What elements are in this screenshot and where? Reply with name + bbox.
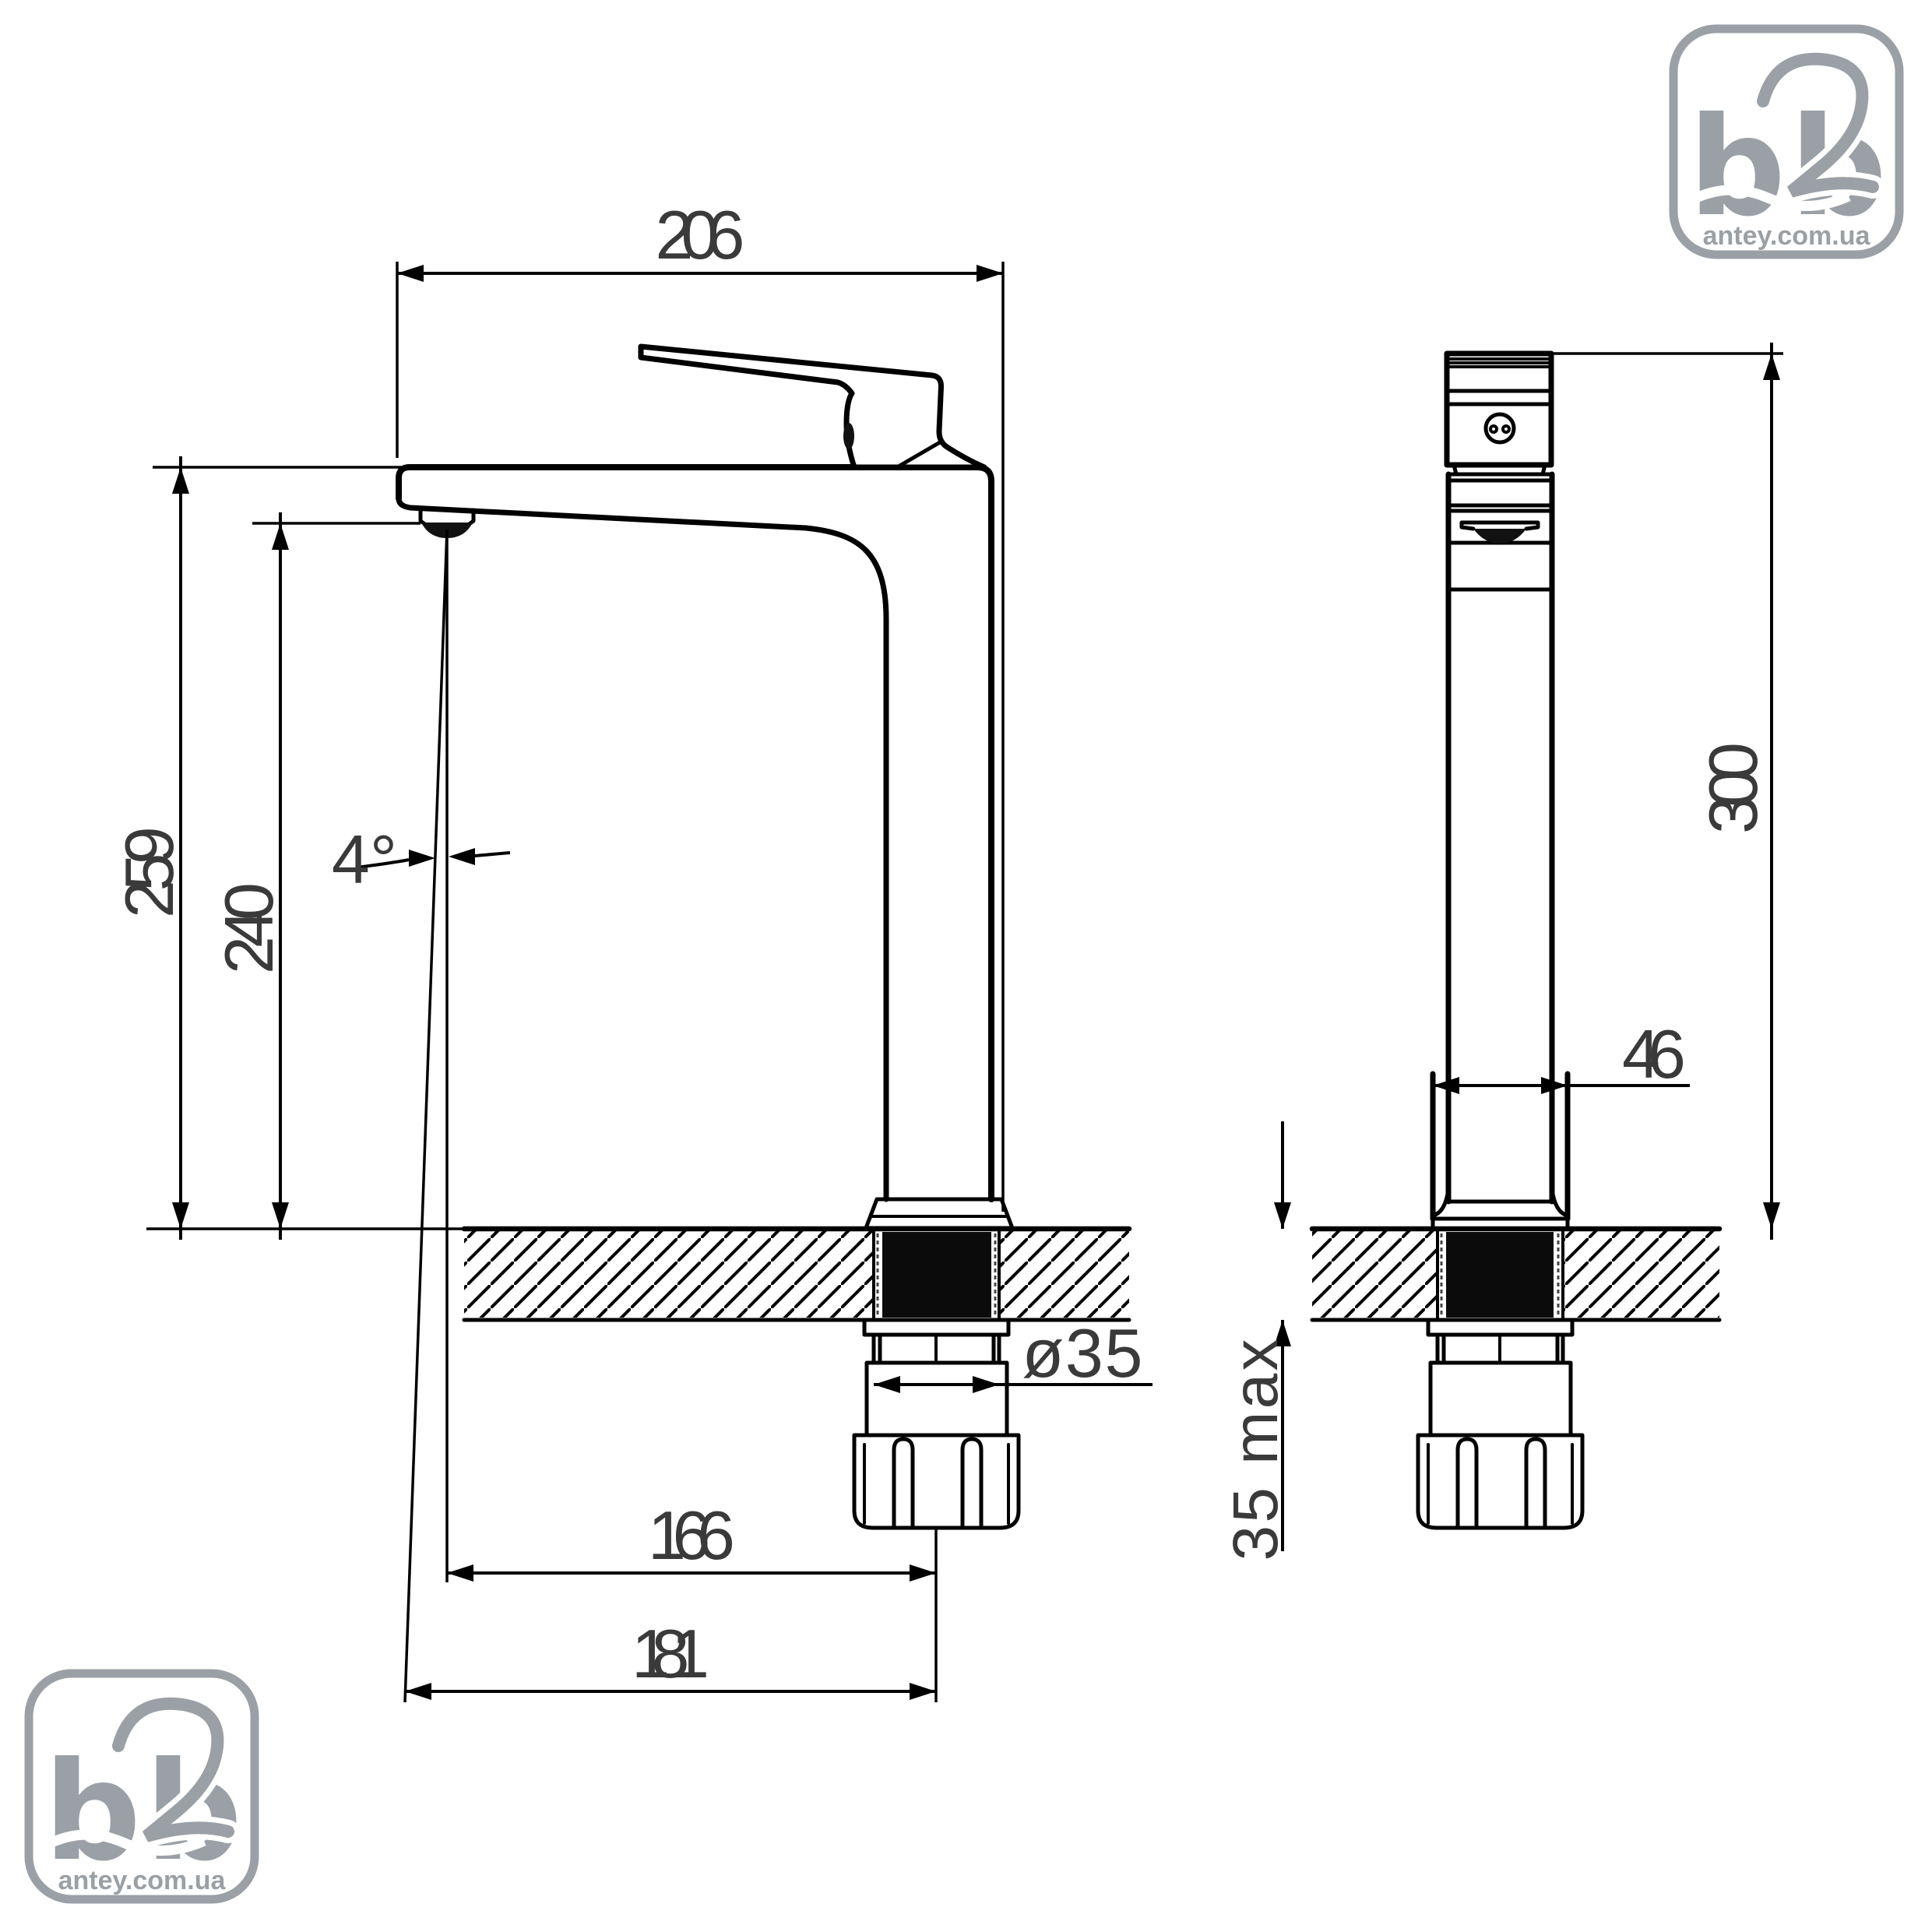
dim-overall-height-label: 300 xyxy=(1694,742,1772,834)
counter-hatch-left-b xyxy=(999,1231,1129,1318)
side-spout-underside xyxy=(399,498,886,1199)
front-locknut xyxy=(1431,1363,1571,1435)
front-lever-cap xyxy=(1447,354,1551,465)
side-gasket xyxy=(882,1232,991,1318)
dim-front-offset-label: 181 xyxy=(632,1615,709,1692)
watermark-logo-bottom-left xyxy=(29,1673,255,1899)
dim-thread-diameter-label: ø35 xyxy=(1022,1314,1143,1392)
counter-hatch-right-b xyxy=(1563,1231,1719,1318)
watermark-logo-top-right xyxy=(1673,29,1899,255)
faucet-dimension-drawing: b b antey.com.ua xyxy=(0,0,1932,1932)
dim-spout-angle-label: 4° xyxy=(332,821,397,898)
dim-base-width-label: 46 xyxy=(1622,1015,1686,1093)
side-locknut xyxy=(867,1363,1007,1435)
side-lever-handle xyxy=(641,347,984,467)
dim-spout-reach-total-label: 206 xyxy=(656,196,745,273)
ext-spout-angle-line xyxy=(405,530,447,1702)
dim-height-to-aerator-label: 240 xyxy=(210,882,287,974)
counter-hatch-left-a xyxy=(464,1231,874,1318)
side-mounting-nut xyxy=(854,1435,1019,1528)
dim-max-deck-thickness-label: 35 max xyxy=(1220,1339,1291,1561)
dim-aerator-offset-label: 166 xyxy=(648,1497,735,1574)
front-mounting-nut xyxy=(1418,1435,1582,1528)
front-skirt-sides xyxy=(1433,1074,1568,1219)
dim-height-to-body-top-label: 259 xyxy=(111,826,188,918)
side-body-outline xyxy=(399,467,991,1199)
front-aerator-housing xyxy=(1462,523,1538,529)
side-base-flange xyxy=(866,1199,1012,1228)
counter-hatch-right-a xyxy=(1312,1231,1438,1318)
side-pivot-detail xyxy=(843,423,854,449)
front-view xyxy=(1418,354,1582,1528)
side-view xyxy=(399,347,1019,1528)
front-cap-top-lines xyxy=(1447,359,1551,367)
technical-drawing-page: b b antey.com.ua xyxy=(0,0,1932,1932)
front-washer xyxy=(1428,1320,1572,1335)
front-gasket xyxy=(1446,1232,1554,1318)
side-washer xyxy=(864,1320,1008,1335)
front-shaft-sides xyxy=(1448,474,1552,1202)
